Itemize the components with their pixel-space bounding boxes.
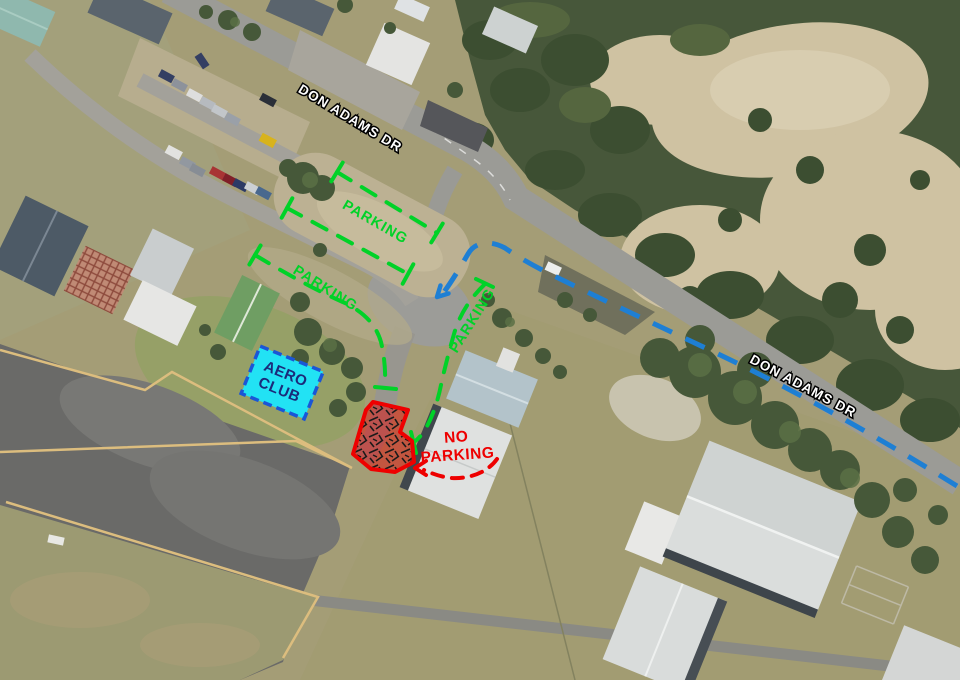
no-parking-label-line1: NO <box>444 428 469 447</box>
grass-patch <box>140 623 260 667</box>
aerial-map: AERO CLUB DON ADAMS DR DON ADAMS DR PARK… <box>0 0 960 680</box>
grass-patch <box>10 572 150 628</box>
aerial-map-canvas: AERO CLUB DON ADAMS DR DON ADAMS DR PARK… <box>0 0 960 680</box>
